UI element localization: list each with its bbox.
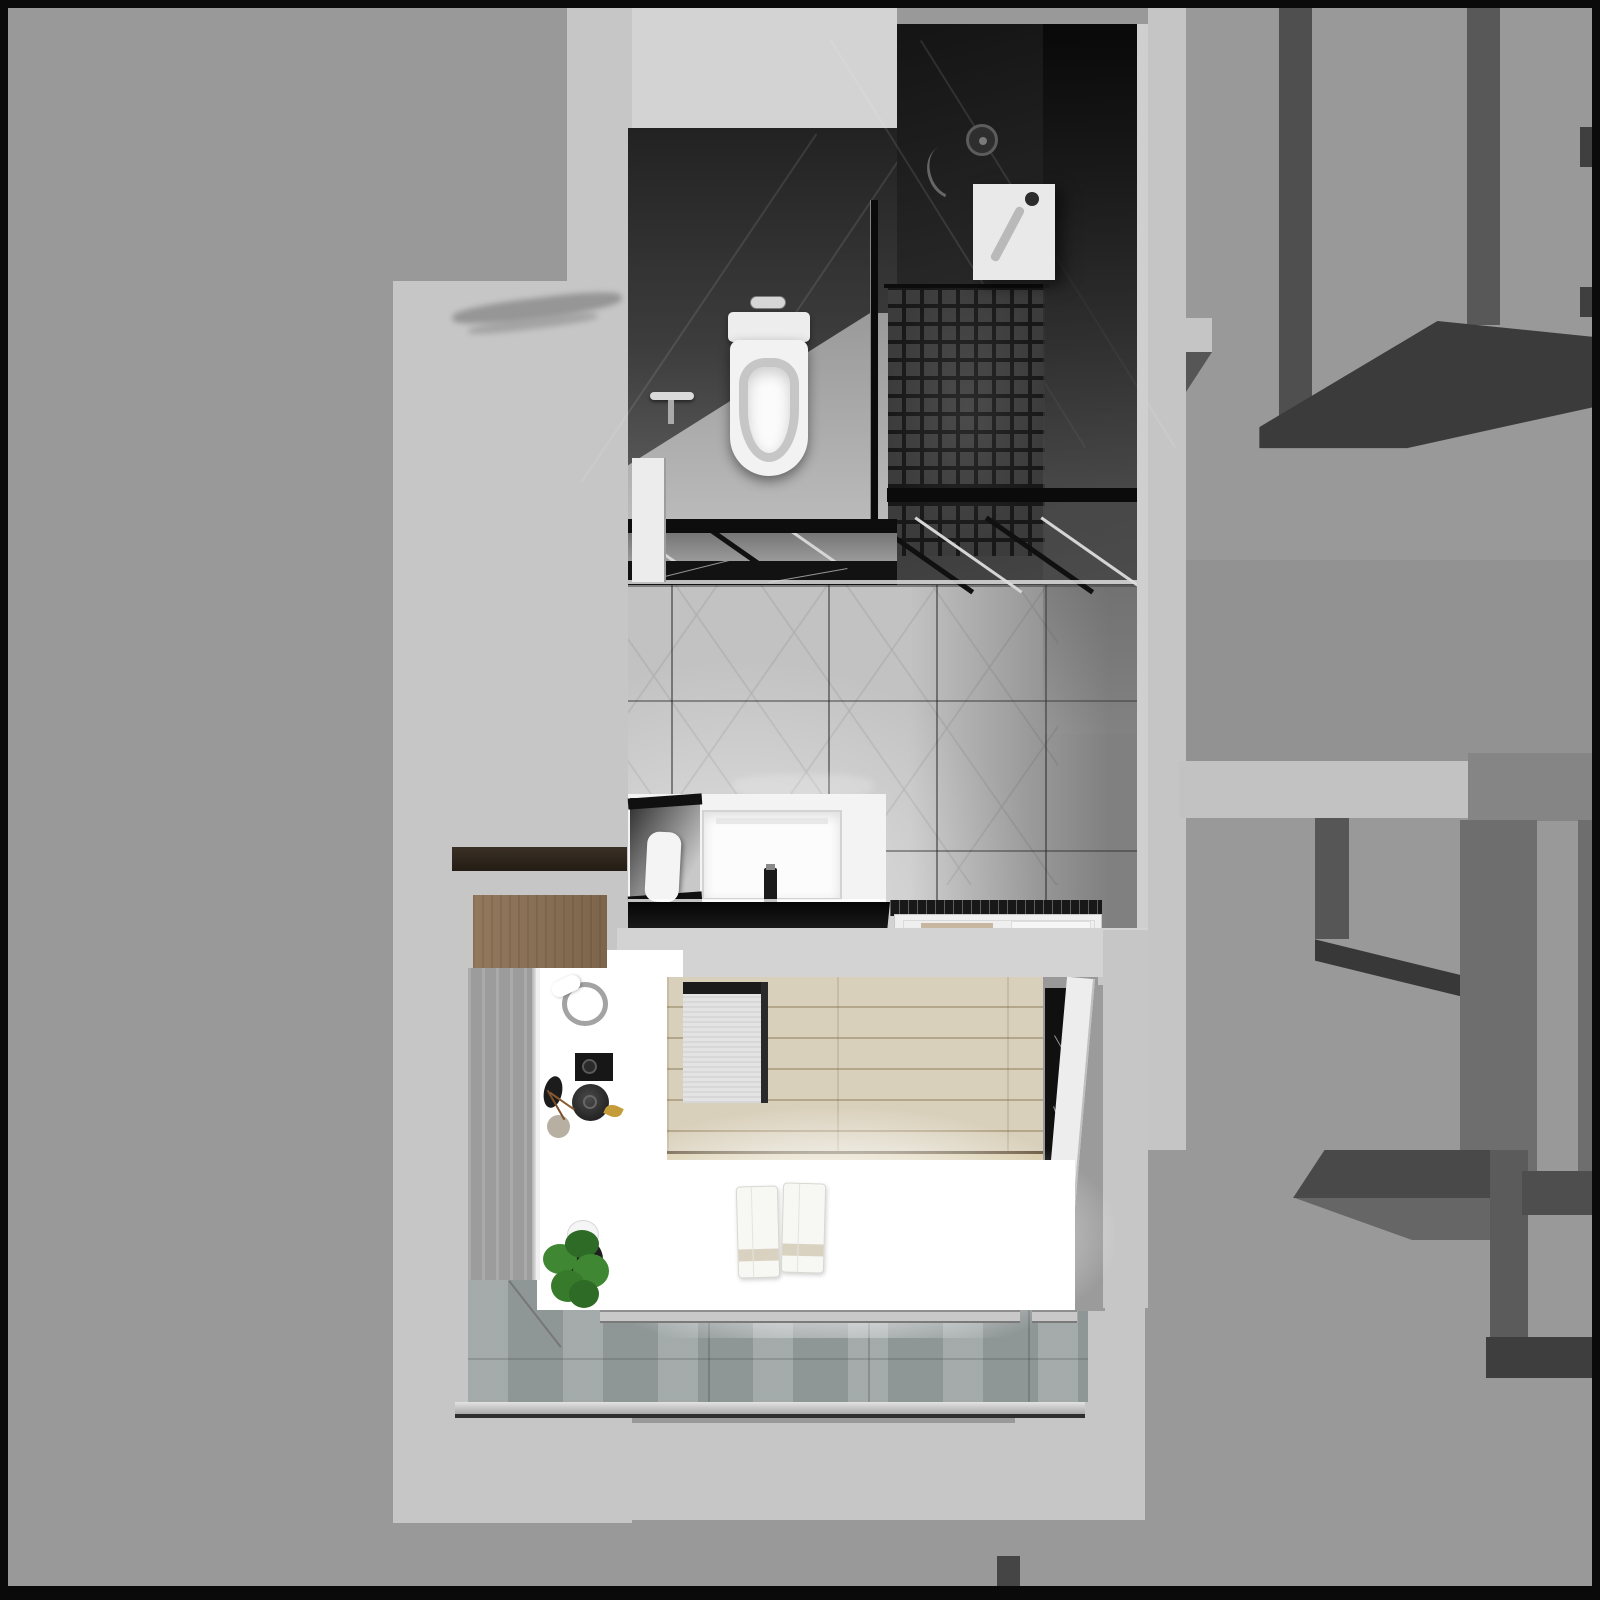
toilet-bowl <box>739 358 799 462</box>
heater-handle <box>989 205 1025 262</box>
shower-head-center <box>979 137 987 145</box>
dark-wood-shelf <box>452 847 627 871</box>
heater-knob <box>1025 192 1039 206</box>
h-band-h <box>1522 1171 1592 1215</box>
tab-shadow <box>1186 352 1212 392</box>
kettle-lid <box>583 1095 597 1109</box>
floor-chrome-edge <box>628 580 1140 584</box>
edge-notch-1 <box>1580 127 1592 167</box>
folded-towel <box>781 1182 826 1273</box>
dark-band-mid <box>1468 753 1592 821</box>
image-border-top <box>0 0 1600 8</box>
light-strip-right <box>1148 8 1186 1150</box>
basin-chrome-edge <box>716 818 828 824</box>
washer-side-bar <box>761 982 768 1103</box>
floor-grout-line <box>936 585 938 930</box>
diagonal-rail-c <box>1315 930 1537 1015</box>
counter-edge-highlight <box>536 968 540 1280</box>
black-tray <box>575 1053 613 1081</box>
door-frame-strip <box>632 458 666 582</box>
mid-gray-overlay <box>1186 560 1592 761</box>
vase <box>547 1115 570 1138</box>
water-heater-box <box>973 184 1055 280</box>
towel-stripe <box>782 1243 823 1256</box>
kettle <box>572 1084 609 1121</box>
towel-fold <box>797 1184 800 1272</box>
image-border-bottom <box>0 1586 1600 1600</box>
toilet <box>728 312 810 480</box>
cup <box>582 1059 597 1074</box>
chrome-dark-line <box>455 1414 1085 1418</box>
linear-drain <box>600 1310 1020 1323</box>
right-wall <box>1103 930 1148 1308</box>
light-wall-column-top <box>567 8 632 281</box>
light-wall-bottom-band <box>632 1423 1145 1520</box>
wood-cabinet-top <box>473 895 607 968</box>
plant-leaves <box>569 1280 599 1308</box>
shower-door-rails <box>897 502 1140 610</box>
door-rail <box>775 533 883 561</box>
mosaic-frame <box>884 284 1049 288</box>
floorplan-render <box>0 0 1600 1600</box>
hand-towel <box>644 831 682 903</box>
door-rail <box>696 533 805 561</box>
cast-shadow-band <box>1256 321 1592 452</box>
towel-stripe <box>738 1248 778 1261</box>
flush-plate <box>750 296 786 309</box>
white-glow-floor <box>595 1160 1075 1310</box>
washing-machine-top <box>683 982 768 1103</box>
tile-seam <box>468 1358 1088 1360</box>
bathroom-right-wall-edge <box>1137 24 1148 930</box>
light-band-mid <box>1179 761 1468 818</box>
wall-bar-e <box>1578 820 1592 1197</box>
watermark <box>733 774 873 798</box>
counter-glass-line <box>628 899 886 902</box>
wall-bar-d <box>1460 820 1537 1197</box>
bathroom <box>628 24 1145 930</box>
toilet-tank <box>728 312 810 342</box>
washer-dark-edge <box>683 982 768 994</box>
wall-bar-g <box>1490 1150 1528 1376</box>
towel-bar-stem <box>668 400 674 424</box>
towel-fold <box>751 1187 754 1277</box>
glass-top-edge-left <box>628 519 897 533</box>
edge-notch-2 <box>1580 287 1592 317</box>
shower-head <box>966 124 998 156</box>
under-glass-strip <box>628 533 897 561</box>
potted-plant <box>543 1228 615 1312</box>
wall-bar-b <box>1467 8 1500 325</box>
h-band-i <box>1486 1337 1592 1378</box>
faucet-tip <box>766 864 775 870</box>
towel-bar <box>650 392 694 400</box>
laundry-balcony <box>455 928 1148 1420</box>
shower-right-wall-shade <box>1043 24 1140 734</box>
image-border-right <box>1592 0 1600 1600</box>
wall-bar-a <box>1279 8 1312 438</box>
wall-bar-c <box>1315 818 1349 939</box>
linear-drain-short <box>1032 1310 1077 1323</box>
image-border-left <box>0 0 8 1600</box>
leaning-mirror <box>630 798 700 908</box>
shadow-under-f <box>1295 1198 1490 1240</box>
h-band-f <box>1293 1150 1490 1198</box>
room-top-wall-band <box>617 928 1148 977</box>
light-strip-tab <box>1186 318 1212 352</box>
folded-towel <box>736 1185 780 1278</box>
glass-top-edge-right <box>887 488 1140 502</box>
glass-partition <box>870 200 878 533</box>
floor-chrome-edge <box>455 1402 1085 1414</box>
